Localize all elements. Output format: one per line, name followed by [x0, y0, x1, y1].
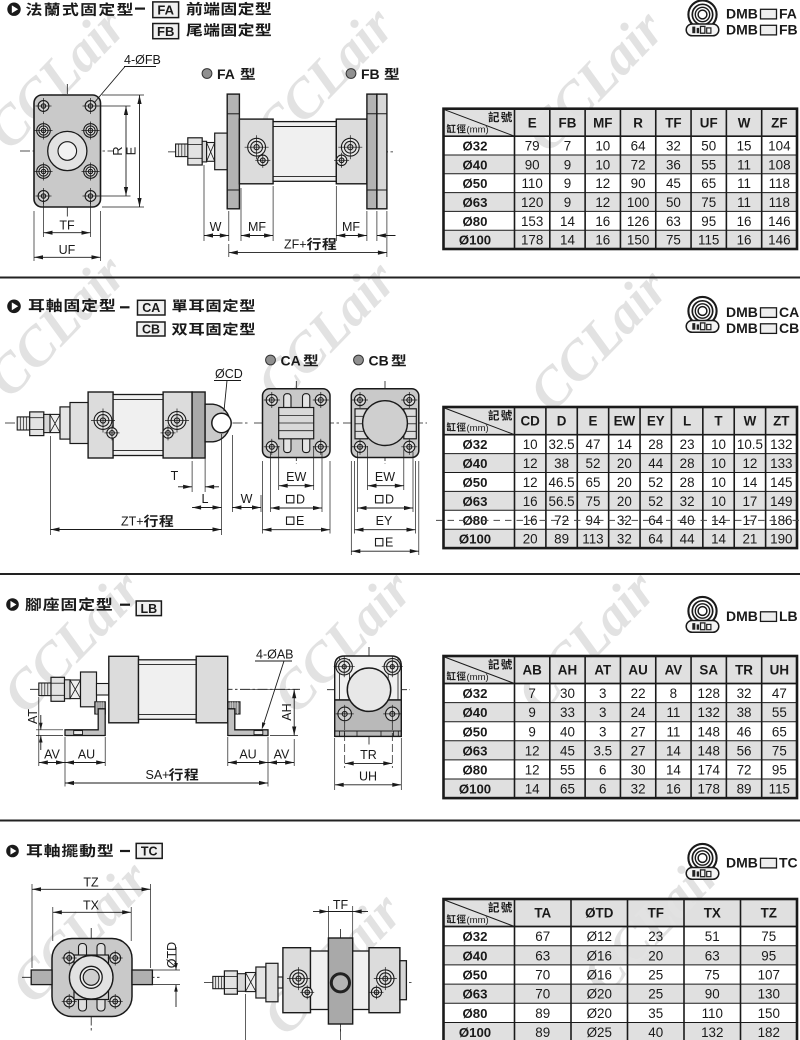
- svg-text:146: 146: [768, 233, 790, 248]
- svg-text:ØTD: ØTD: [165, 942, 179, 968]
- svg-text:56: 56: [737, 743, 752, 758]
- svg-text:190: 190: [770, 532, 792, 547]
- svg-text:UH: UH: [359, 769, 377, 783]
- svg-text:40: 40: [648, 1025, 663, 1040]
- svg-text:36: 36: [666, 157, 681, 172]
- svg-text:11: 11: [737, 176, 751, 191]
- svg-text:FA: FA: [157, 2, 174, 17]
- svg-text:TR: TR: [735, 663, 753, 678]
- svg-text:7: 7: [564, 139, 571, 154]
- svg-text:Ø40: Ø40: [463, 705, 488, 720]
- svg-text:63: 63: [535, 948, 550, 963]
- svg-text:30: 30: [631, 762, 646, 777]
- svg-text:Ø25: Ø25: [587, 1025, 612, 1040]
- svg-text:65: 65: [586, 475, 601, 490]
- svg-text:63: 63: [666, 214, 681, 229]
- svg-text:132: 132: [698, 705, 720, 720]
- svg-text:146: 146: [768, 214, 790, 229]
- svg-text:118: 118: [769, 176, 790, 191]
- svg-text:32: 32: [680, 494, 695, 509]
- svg-text:55: 55: [772, 705, 787, 720]
- svg-text:(mm): (mm): [467, 423, 489, 434]
- svg-text:10: 10: [523, 437, 538, 452]
- svg-text:89: 89: [535, 1025, 550, 1040]
- svg-text:FA: FA: [779, 6, 797, 22]
- svg-text:90: 90: [705, 987, 720, 1002]
- svg-text:110: 110: [702, 1006, 723, 1021]
- svg-text:14: 14: [742, 475, 757, 490]
- svg-text:33: 33: [560, 705, 575, 720]
- svg-text:45: 45: [666, 176, 681, 191]
- svg-text:UF: UF: [700, 115, 718, 130]
- svg-text:10: 10: [711, 437, 726, 452]
- svg-text:75: 75: [761, 929, 776, 944]
- svg-text:45: 45: [560, 743, 575, 758]
- svg-text:110: 110: [521, 176, 542, 191]
- svg-text:32: 32: [666, 139, 681, 154]
- svg-text:14: 14: [617, 437, 632, 452]
- svg-text:Ø32: Ø32: [463, 686, 488, 701]
- svg-text:115: 115: [769, 782, 790, 797]
- svg-text:7: 7: [528, 686, 535, 701]
- svg-text:TX: TX: [704, 906, 721, 921]
- svg-text:16: 16: [666, 782, 681, 797]
- svg-text:Ø40: Ø40: [463, 948, 488, 963]
- svg-text:6: 6: [599, 762, 606, 777]
- svg-text:14: 14: [666, 762, 681, 777]
- svg-text:52: 52: [586, 456, 601, 471]
- svg-text:174: 174: [698, 762, 721, 777]
- svg-text:90: 90: [631, 176, 646, 191]
- svg-text:W: W: [210, 220, 222, 234]
- svg-text:15: 15: [737, 139, 752, 154]
- svg-text:12: 12: [525, 743, 540, 758]
- svg-text:145: 145: [770, 475, 792, 490]
- svg-text:11: 11: [737, 195, 751, 210]
- svg-text:22: 22: [631, 686, 646, 701]
- svg-text:DMB: DMB: [726, 608, 758, 624]
- svg-text:ZT: ZT: [773, 414, 790, 429]
- svg-text:149: 149: [770, 494, 792, 509]
- svg-text:SA: SA: [699, 663, 718, 678]
- svg-text:24: 24: [631, 705, 646, 720]
- svg-text:Ø50: Ø50: [463, 724, 488, 739]
- svg-text:AV: AV: [44, 748, 60, 762]
- svg-text:32: 32: [631, 782, 646, 797]
- svg-text:W: W: [241, 492, 253, 506]
- svg-text:9: 9: [528, 705, 535, 720]
- svg-text:12: 12: [525, 762, 540, 777]
- svg-text:AH: AH: [280, 703, 294, 720]
- svg-text:CB: CB: [369, 353, 389, 369]
- svg-text:AT: AT: [26, 709, 40, 724]
- svg-text:16: 16: [737, 214, 752, 229]
- svg-text:115: 115: [698, 233, 719, 248]
- svg-text:12: 12: [595, 176, 610, 191]
- svg-text:23: 23: [648, 929, 663, 944]
- svg-text:Ø50: Ø50: [463, 475, 488, 490]
- svg-text:32: 32: [737, 686, 752, 701]
- svg-text:64: 64: [648, 532, 663, 547]
- svg-text:132: 132: [701, 1025, 723, 1040]
- svg-text:40: 40: [560, 724, 575, 739]
- svg-text:148: 148: [698, 743, 720, 758]
- svg-text:65: 65: [772, 724, 787, 739]
- svg-text:75: 75: [705, 968, 720, 983]
- svg-text:178: 178: [698, 782, 720, 797]
- svg-text:FB: FB: [157, 24, 174, 39]
- svg-text:128: 128: [698, 686, 720, 701]
- svg-text:10: 10: [595, 157, 610, 172]
- svg-text:L: L: [202, 492, 209, 506]
- svg-text:Ø100: Ø100: [459, 782, 491, 797]
- svg-text:75: 75: [586, 494, 601, 509]
- svg-text:65: 65: [701, 176, 716, 191]
- svg-text:TR: TR: [360, 748, 377, 762]
- svg-text:Ø63: Ø63: [463, 494, 488, 509]
- svg-text:11: 11: [666, 705, 680, 720]
- svg-text:EW: EW: [614, 414, 636, 429]
- svg-text:EY: EY: [647, 414, 665, 429]
- svg-text:47: 47: [772, 686, 787, 701]
- svg-text:148: 148: [698, 724, 720, 739]
- svg-text:Ø32: Ø32: [463, 437, 488, 452]
- svg-text:CA: CA: [142, 301, 160, 315]
- svg-text:65: 65: [560, 782, 575, 797]
- svg-text:Ø16: Ø16: [587, 948, 612, 963]
- svg-text:Ø100: Ø100: [459, 532, 491, 547]
- svg-text:16: 16: [595, 233, 610, 248]
- svg-text:Ø63: Ø63: [463, 743, 488, 758]
- svg-text:30: 30: [560, 686, 575, 701]
- svg-text:38: 38: [737, 705, 752, 720]
- svg-text:Ø50: Ø50: [463, 176, 488, 191]
- svg-text:DMB: DMB: [726, 22, 758, 38]
- svg-text:89: 89: [535, 1006, 550, 1021]
- svg-text:44: 44: [680, 532, 695, 547]
- svg-text:64: 64: [631, 139, 646, 154]
- svg-text:10: 10: [711, 475, 726, 490]
- svg-text:AU: AU: [239, 748, 256, 762]
- svg-text:46.5: 46.5: [549, 475, 575, 490]
- svg-text:16: 16: [523, 494, 538, 509]
- svg-text:Ø16: Ø16: [587, 968, 612, 983]
- svg-text:ØCD: ØCD: [215, 367, 243, 381]
- svg-text:L: L: [683, 414, 691, 429]
- svg-text:Ø12: Ø12: [587, 929, 612, 944]
- svg-text:(mm): (mm): [467, 125, 489, 136]
- svg-text:Ø100: Ø100: [459, 233, 491, 248]
- svg-text:CB: CB: [142, 323, 160, 337]
- svg-text:95: 95: [701, 214, 716, 229]
- svg-text:72: 72: [737, 762, 752, 777]
- svg-text:TC: TC: [779, 855, 798, 871]
- svg-text:20: 20: [617, 475, 632, 490]
- svg-text:FB: FB: [559, 115, 577, 130]
- svg-text:11: 11: [737, 157, 751, 172]
- svg-text:TF: TF: [333, 898, 349, 912]
- svg-text:38: 38: [554, 456, 569, 471]
- svg-text:20: 20: [617, 456, 632, 471]
- svg-text:Ø40: Ø40: [463, 157, 488, 172]
- svg-text:75: 75: [772, 743, 787, 758]
- svg-text:21: 21: [742, 532, 757, 547]
- svg-text:100: 100: [627, 195, 649, 210]
- svg-text:(mm): (mm): [467, 672, 489, 683]
- svg-text:14: 14: [560, 233, 575, 248]
- svg-text:CA: CA: [281, 353, 301, 369]
- svg-text:Ø32: Ø32: [463, 929, 488, 944]
- svg-text:17: 17: [742, 494, 757, 509]
- svg-text:150: 150: [758, 1006, 780, 1021]
- svg-text:AV: AV: [665, 663, 683, 678]
- svg-text:6: 6: [599, 782, 606, 797]
- svg-text:D: D: [385, 493, 394, 507]
- svg-text:4-ØFB: 4-ØFB: [124, 53, 161, 67]
- svg-text:Ø40: Ø40: [463, 456, 488, 471]
- svg-text:44: 44: [648, 456, 663, 471]
- svg-text:TZ: TZ: [761, 906, 777, 921]
- svg-text:108: 108: [768, 157, 790, 172]
- svg-text:12: 12: [523, 456, 538, 471]
- svg-text:10: 10: [711, 456, 726, 471]
- svg-text:107: 107: [758, 968, 780, 983]
- svg-text:3: 3: [599, 686, 606, 701]
- svg-text:Ø63: Ø63: [463, 987, 488, 1002]
- svg-text:89: 89: [554, 532, 569, 547]
- svg-text:E: E: [296, 514, 304, 528]
- svg-text:12: 12: [742, 456, 757, 471]
- svg-text:Ø100: Ø100: [459, 1025, 491, 1040]
- svg-text:23: 23: [680, 437, 695, 452]
- svg-text:AU: AU: [78, 748, 95, 762]
- svg-text:104: 104: [768, 139, 791, 154]
- svg-text:20: 20: [648, 948, 663, 963]
- svg-text:AB: AB: [522, 663, 542, 678]
- svg-text:Ø63: Ø63: [463, 195, 488, 210]
- svg-text:25: 25: [648, 968, 663, 983]
- svg-text:E: E: [528, 115, 537, 130]
- svg-text:FB: FB: [361, 66, 380, 82]
- svg-text:55: 55: [560, 762, 575, 777]
- svg-text:75: 75: [666, 233, 681, 248]
- svg-text:DMB: DMB: [726, 304, 758, 320]
- svg-text:47: 47: [586, 437, 601, 452]
- svg-text:50: 50: [666, 195, 681, 210]
- svg-text:8: 8: [670, 686, 677, 701]
- svg-text:20: 20: [523, 532, 538, 547]
- svg-text:3: 3: [599, 705, 606, 720]
- svg-text:D: D: [557, 414, 567, 429]
- svg-text:AU: AU: [628, 663, 647, 678]
- svg-text:32: 32: [617, 532, 632, 547]
- svg-text:EY: EY: [376, 514, 393, 528]
- svg-text:9: 9: [528, 724, 535, 739]
- svg-text:Ø50: Ø50: [463, 968, 488, 983]
- svg-text:TF: TF: [648, 906, 664, 921]
- svg-text:35: 35: [648, 1006, 663, 1021]
- svg-text:51: 51: [705, 929, 720, 944]
- svg-text:ZF: ZF: [771, 115, 787, 130]
- svg-text:Ø20: Ø20: [587, 1006, 612, 1021]
- svg-text:TF: TF: [59, 219, 75, 233]
- svg-text:14: 14: [666, 743, 681, 758]
- svg-text:MF: MF: [342, 220, 360, 234]
- svg-text:182: 182: [758, 1025, 780, 1040]
- svg-text:130: 130: [758, 987, 780, 1002]
- svg-text:3.5: 3.5: [593, 743, 612, 758]
- svg-text:120: 120: [521, 195, 543, 210]
- svg-text:R: R: [633, 115, 643, 130]
- svg-text:LB: LB: [779, 608, 798, 624]
- svg-text:46: 46: [737, 724, 752, 739]
- svg-text:153: 153: [521, 214, 543, 229]
- svg-text:11: 11: [666, 724, 680, 739]
- svg-text:126: 126: [627, 214, 649, 229]
- svg-text:ZT+: ZT+: [121, 515, 144, 529]
- svg-text:14: 14: [560, 214, 575, 229]
- svg-text:DMB: DMB: [726, 855, 758, 871]
- svg-text:CD: CD: [521, 414, 541, 429]
- svg-text:AV: AV: [274, 748, 290, 762]
- svg-text:Ø32: Ø32: [463, 139, 488, 154]
- svg-text:T: T: [171, 469, 179, 483]
- svg-text:27: 27: [631, 743, 646, 758]
- svg-text:32.5: 32.5: [549, 437, 575, 452]
- svg-text:9: 9: [564, 195, 571, 210]
- svg-text:LB: LB: [140, 602, 157, 616]
- svg-text:E: E: [124, 146, 139, 155]
- svg-text:70: 70: [535, 987, 550, 1002]
- svg-text:CB: CB: [779, 320, 799, 336]
- svg-text:EW: EW: [286, 470, 306, 484]
- svg-text:14: 14: [711, 532, 726, 547]
- svg-text:9: 9: [564, 157, 571, 172]
- svg-text:Ø80: Ø80: [463, 762, 488, 777]
- svg-text:E: E: [385, 536, 393, 550]
- svg-text:12: 12: [595, 195, 610, 210]
- svg-text:TZ: TZ: [83, 875, 99, 889]
- svg-text:W: W: [738, 115, 751, 130]
- svg-text:TA: TA: [534, 906, 551, 921]
- svg-text:MF: MF: [593, 115, 612, 130]
- svg-text:DMB: DMB: [726, 6, 758, 22]
- svg-text:(mm): (mm): [467, 915, 489, 926]
- svg-text:ØTD: ØTD: [585, 906, 614, 921]
- svg-text:4-ØAB: 4-ØAB: [256, 648, 294, 662]
- svg-text:TX: TX: [83, 899, 100, 913]
- svg-text:MF: MF: [248, 220, 266, 234]
- svg-text:55: 55: [701, 157, 716, 172]
- svg-text:T: T: [714, 414, 723, 429]
- svg-text:CA: CA: [779, 304, 799, 320]
- svg-text:Ø80: Ø80: [463, 214, 488, 229]
- svg-text:10: 10: [595, 139, 610, 154]
- svg-text:95: 95: [761, 948, 776, 963]
- svg-text:D: D: [296, 493, 305, 507]
- svg-text:SA+: SA+: [146, 768, 170, 782]
- svg-text:79: 79: [525, 139, 540, 154]
- svg-text:56.5: 56.5: [549, 494, 575, 509]
- svg-text:28: 28: [680, 475, 695, 490]
- svg-text:3: 3: [599, 724, 606, 739]
- svg-text:95: 95: [772, 762, 787, 777]
- svg-text:50: 50: [701, 139, 716, 154]
- svg-text:72: 72: [631, 157, 646, 172]
- svg-text:W: W: [744, 414, 757, 429]
- svg-text:28: 28: [648, 437, 663, 452]
- svg-text:132: 132: [770, 437, 792, 452]
- svg-text:12: 12: [523, 475, 538, 490]
- svg-text:27: 27: [631, 724, 646, 739]
- svg-text:75: 75: [701, 195, 716, 210]
- svg-text:E: E: [589, 414, 598, 429]
- svg-text:UH: UH: [770, 663, 789, 678]
- svg-text:118: 118: [769, 195, 790, 210]
- svg-text:9: 9: [564, 176, 571, 191]
- svg-text:25: 25: [648, 987, 663, 1002]
- svg-text:10: 10: [711, 494, 726, 509]
- svg-text:89: 89: [737, 782, 752, 797]
- svg-text:14: 14: [525, 782, 540, 797]
- svg-text:20: 20: [617, 494, 632, 509]
- svg-text:67: 67: [535, 929, 550, 944]
- svg-text:EW: EW: [375, 470, 395, 484]
- svg-text:AH: AH: [558, 663, 577, 678]
- svg-text:FA: FA: [217, 66, 235, 82]
- svg-text:Ø20: Ø20: [587, 987, 612, 1002]
- svg-text:63: 63: [705, 948, 720, 963]
- svg-text:133: 133: [770, 456, 792, 471]
- svg-text:ZF+: ZF+: [284, 238, 307, 252]
- svg-text:90: 90: [525, 157, 540, 172]
- svg-text:52: 52: [648, 494, 663, 509]
- svg-text:16: 16: [595, 214, 610, 229]
- svg-text:TC: TC: [141, 844, 158, 858]
- svg-text:10.5: 10.5: [737, 437, 763, 452]
- svg-text:TF: TF: [665, 115, 681, 130]
- svg-text:113: 113: [582, 532, 603, 547]
- svg-text:DMB: DMB: [726, 320, 758, 336]
- svg-text:Ø80: Ø80: [463, 1006, 488, 1021]
- svg-text:FB: FB: [779, 22, 798, 38]
- svg-text:178: 178: [521, 233, 543, 248]
- svg-text:52: 52: [648, 475, 663, 490]
- svg-text:16: 16: [737, 233, 752, 248]
- svg-text:UF: UF: [59, 243, 76, 257]
- svg-text:70: 70: [535, 968, 550, 983]
- svg-text:AT: AT: [594, 663, 612, 678]
- svg-text:150: 150: [627, 233, 649, 248]
- svg-text:28: 28: [680, 456, 695, 471]
